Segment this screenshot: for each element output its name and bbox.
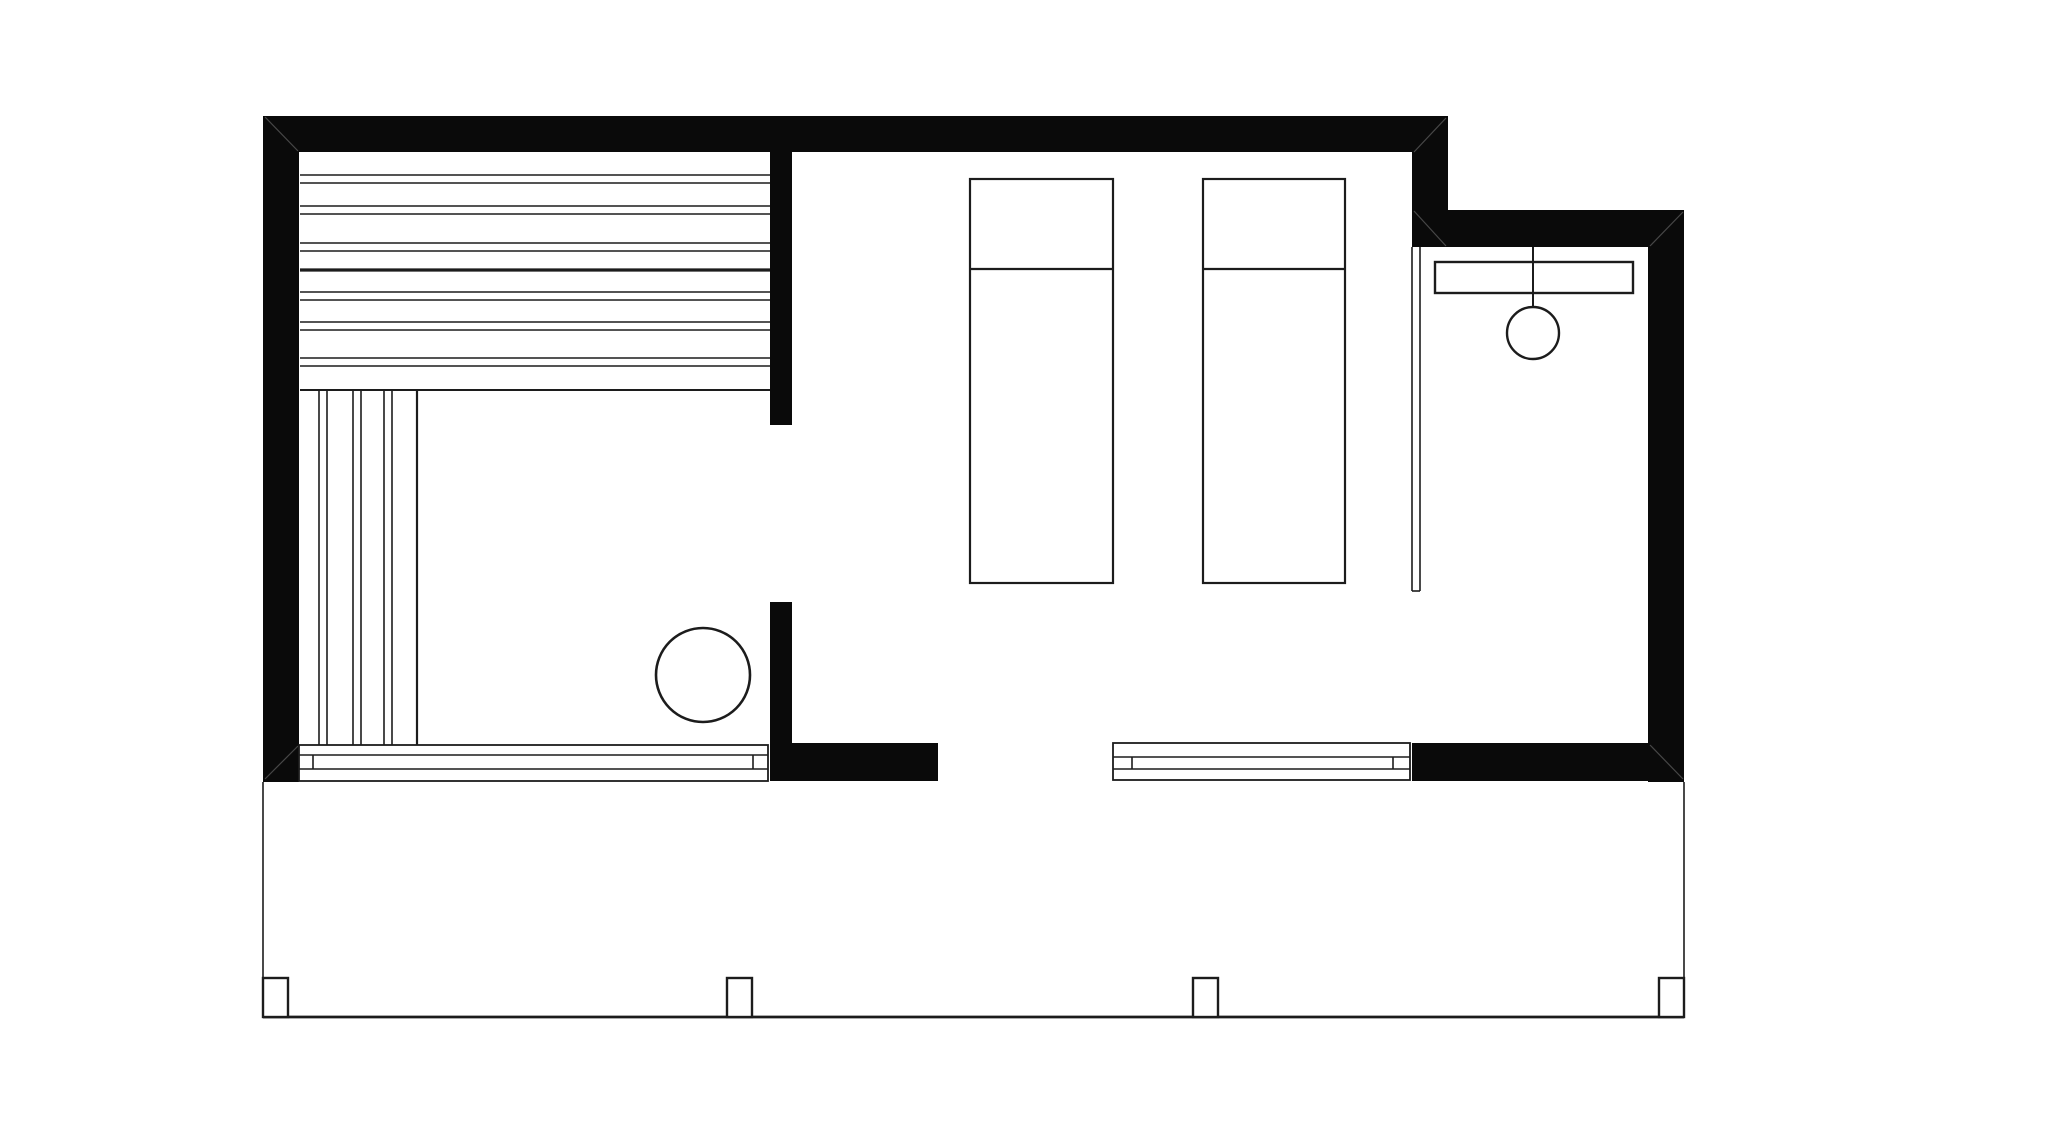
deck-post-3 bbox=[1193, 978, 1218, 1017]
pendant-lamp-circle bbox=[1507, 307, 1559, 359]
wall-sauna-partition-upper bbox=[770, 152, 792, 425]
terrace-door-track bbox=[1113, 743, 1410, 780]
wall-bath-right bbox=[1648, 210, 1684, 782]
deck-post-2 bbox=[727, 978, 752, 1017]
sauna-window-bench bbox=[299, 745, 768, 781]
sauna-stove-circle bbox=[656, 628, 750, 722]
lounger-2 bbox=[1203, 179, 1345, 583]
wall-sauna-partition-jamb bbox=[770, 602, 792, 743]
wall-top bbox=[263, 116, 1448, 152]
floor-plan-svg bbox=[0, 0, 2048, 1136]
wall-bath-top bbox=[1412, 210, 1684, 247]
wall-bottom-entry bbox=[770, 743, 938, 781]
lounger-1 bbox=[970, 179, 1113, 583]
wall-left bbox=[263, 116, 299, 782]
floor-plan bbox=[0, 0, 2048, 1136]
deck-post-4 bbox=[1659, 978, 1684, 1017]
deck-post-1 bbox=[263, 978, 288, 1017]
wall-bottom-bath bbox=[1412, 743, 1648, 781]
